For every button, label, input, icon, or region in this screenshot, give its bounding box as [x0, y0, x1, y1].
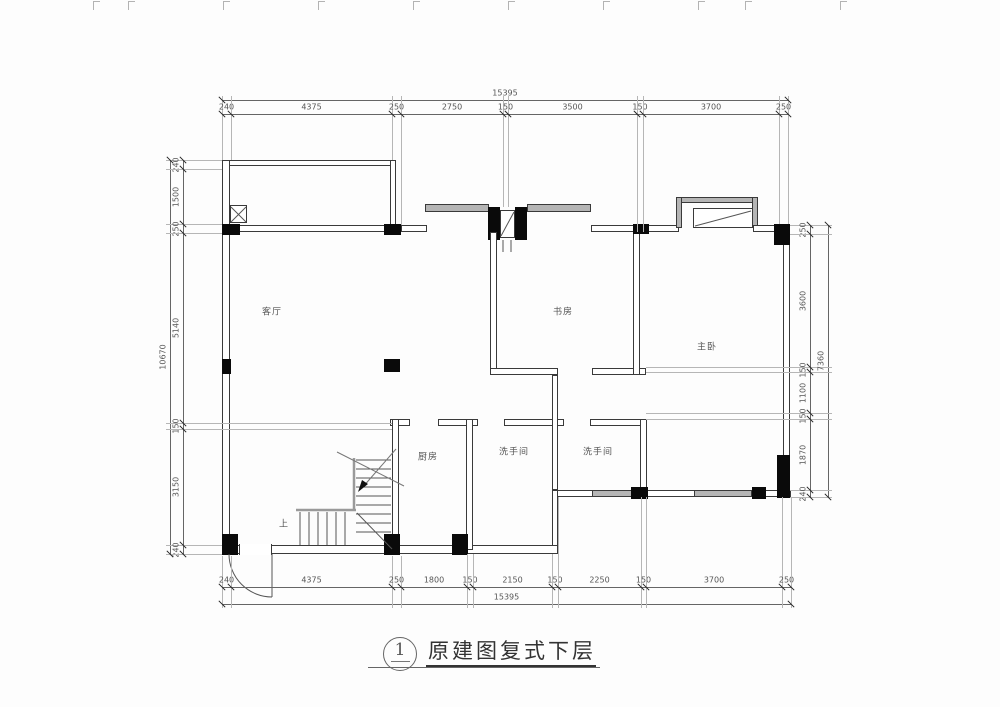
- column: [222, 359, 231, 374]
- dim-ext-bottom-10: [782, 497, 783, 608]
- study-right-wall: [633, 232, 640, 375]
- column: [633, 224, 649, 234]
- ruler-mark: [745, 1, 752, 10]
- column: [384, 534, 400, 555]
- dim-ext-right-5: [646, 419, 832, 420]
- dim-line-right: [810, 225, 811, 497]
- dim-ext-right-3: [646, 372, 832, 373]
- dim-line-left: [183, 160, 184, 554]
- column: [222, 224, 240, 235]
- column: [774, 224, 790, 245]
- dim-ext-bottom-11: [791, 497, 792, 608]
- bath-divider-wall: [552, 375, 558, 490]
- dim-line-right-total: [828, 225, 829, 497]
- dim-ext-left-4: [166, 423, 392, 424]
- dim-label-top-3: 2750: [442, 103, 462, 112]
- dim-label-top-5: 3500: [562, 103, 582, 112]
- dim-label-left-3: 5140: [172, 318, 181, 338]
- dim-total-top: 15395: [492, 89, 517, 98]
- column: [777, 455, 790, 488]
- dim-total-left: 10670: [159, 344, 168, 369]
- terrace-top-wall: [222, 160, 396, 166]
- top-wall-living: [229, 225, 402, 232]
- shaft-column-right: [515, 207, 527, 240]
- room-label-study: 书房: [553, 305, 573, 318]
- dim-label-bottom-3: 1800: [424, 576, 444, 585]
- bath2-right-wall: [640, 419, 647, 490]
- stairs-up-label: 上: [279, 517, 289, 530]
- dim-label-left-5: 3150: [172, 477, 181, 497]
- dim-line-bottom: [222, 587, 791, 588]
- column: [384, 359, 400, 372]
- bath-top-wall: [590, 419, 646, 426]
- column: [452, 534, 468, 555]
- drawing-number: 1: [395, 640, 406, 660]
- dim-ext-left-7: [166, 554, 222, 555]
- ruler-mark: [840, 1, 847, 10]
- ruler-mark: [318, 1, 325, 10]
- dim-label-top-7: 3700: [701, 103, 721, 112]
- ruler-mark: [603, 1, 610, 10]
- dim-label-left-1: 1500: [172, 186, 181, 206]
- entry-door-opening: [239, 544, 272, 555]
- dim-total-right: 7360: [817, 351, 826, 371]
- room-label-bathroom-2: 洗手间: [583, 445, 613, 458]
- kitchen-right-wall: [466, 419, 473, 550]
- dim-ext-top-1: [231, 96, 232, 160]
- ruler-mark: [128, 1, 135, 10]
- dim-label-bottom-9: 3700: [704, 576, 724, 585]
- dim-label-bottom-5: 2150: [502, 576, 522, 585]
- dim-ext-bottom-7: [558, 497, 559, 608]
- flue-shaft-box: [500, 210, 515, 238]
- room-label-bathroom-1: 洗手间: [499, 445, 529, 458]
- window-bay-1: [425, 204, 489, 212]
- left-exterior-wall: [222, 160, 230, 554]
- column: [222, 534, 238, 555]
- drawing-number-divider: [391, 661, 410, 662]
- dim-label-right-5: 1870: [799, 444, 808, 464]
- dim-ext-bottom-3: [401, 556, 402, 608]
- bay-window-top: [676, 197, 758, 203]
- terrace-right-wall: [390, 160, 396, 232]
- room-label-kitchen: 厨房: [418, 450, 438, 463]
- top-wall-segment: [401, 225, 427, 232]
- dim-label-bottom-7: 2250: [589, 576, 609, 585]
- kitchen-left-wall: [392, 419, 399, 545]
- dim-ext-bottom-1: [231, 556, 232, 608]
- dim-ext-left-5: [166, 429, 392, 430]
- study-bottom-wall: [490, 368, 558, 375]
- duct-box: [230, 205, 247, 223]
- dim-label-right-3: 1100: [799, 382, 808, 402]
- floor-plan-sheet: 客厅 书房 主卧 厨房 洗手间 洗手间 上 240437525027501503…: [0, 0, 1000, 707]
- column: [752, 487, 766, 499]
- title-underline: [426, 665, 596, 667]
- dim-total-bottom: 15395: [494, 593, 519, 602]
- bay-window-left: [676, 197, 682, 228]
- ruler-mark: [508, 1, 515, 10]
- dim-ext-left-3: [166, 233, 222, 234]
- dim-ext-bottom-8: [641, 497, 642, 608]
- window-bottom-1: [592, 490, 634, 497]
- dim-label-top-1: 4375: [301, 103, 321, 112]
- dim-label-bottom-1: 4375: [301, 576, 321, 585]
- study-left-wall: [490, 232, 497, 375]
- room-label-master-bedroom: 主卧: [697, 340, 717, 353]
- dim-line-bottom-total: [222, 604, 791, 605]
- dim-ext-left-1: [166, 169, 222, 170]
- column: [777, 487, 790, 498]
- room-label-living-room: 客厅: [262, 305, 282, 318]
- ruler-mark: [93, 1, 100, 10]
- column: [384, 224, 401, 235]
- dim-ext-bottom-9: [646, 497, 647, 608]
- window-bay-2: [527, 204, 591, 212]
- dim-line-top-total: [222, 100, 788, 101]
- drawing-title: 原建图复式下层: [428, 635, 596, 665]
- dim-ext-bottom-5: [473, 554, 474, 608]
- ruler-mark: [413, 1, 420, 10]
- window-bottom-2: [694, 490, 752, 497]
- dim-label-right-1: 3600: [799, 290, 808, 310]
- ruler-mark: [223, 1, 230, 10]
- ruler-mark: [698, 1, 705, 10]
- bay-window-box: [693, 208, 753, 228]
